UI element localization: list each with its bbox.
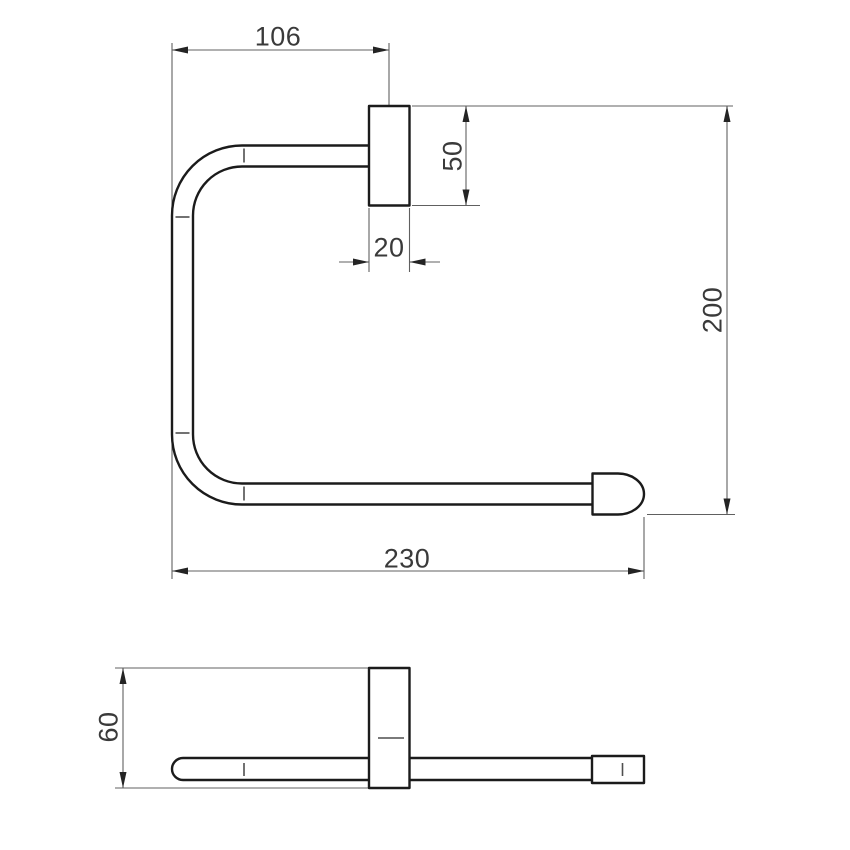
side-view: [115, 668, 644, 788]
wall-plate-side: [369, 668, 410, 788]
arrowhead: [463, 190, 470, 206]
arrowhead: [628, 568, 644, 575]
arrowhead: [724, 499, 731, 515]
arrowhead: [724, 106, 731, 122]
dim-label-overall-depth: 60: [96, 711, 123, 742]
arrowhead: [120, 772, 127, 788]
wall-plate-front: [369, 106, 410, 206]
arrowhead: [120, 668, 127, 684]
arrowhead: [353, 259, 369, 266]
end-cap-front: [593, 474, 645, 515]
end-cap-side: [592, 756, 644, 783]
arrowhead: [373, 47, 389, 54]
arrowhead: [172, 568, 188, 575]
arrowhead: [463, 106, 470, 122]
towel-ring-technical-drawing: [0, 0, 850, 850]
dim-label-plate-width: 20: [373, 235, 404, 262]
dim-label-overall-height: 200: [700, 287, 727, 334]
dim-label-plate-height: 50: [440, 140, 467, 171]
arrowhead: [172, 47, 188, 54]
towel-ring-inner-outline: [193, 167, 593, 484]
front-view: [172, 43, 735, 579]
technical-drawing-canvas: 106 50 20 200 230 60: [0, 0, 850, 850]
dim-label-left-to-plate-center: 106: [255, 24, 302, 51]
dim-label-overall-width: 230: [384, 546, 431, 573]
arrowhead: [410, 259, 426, 266]
